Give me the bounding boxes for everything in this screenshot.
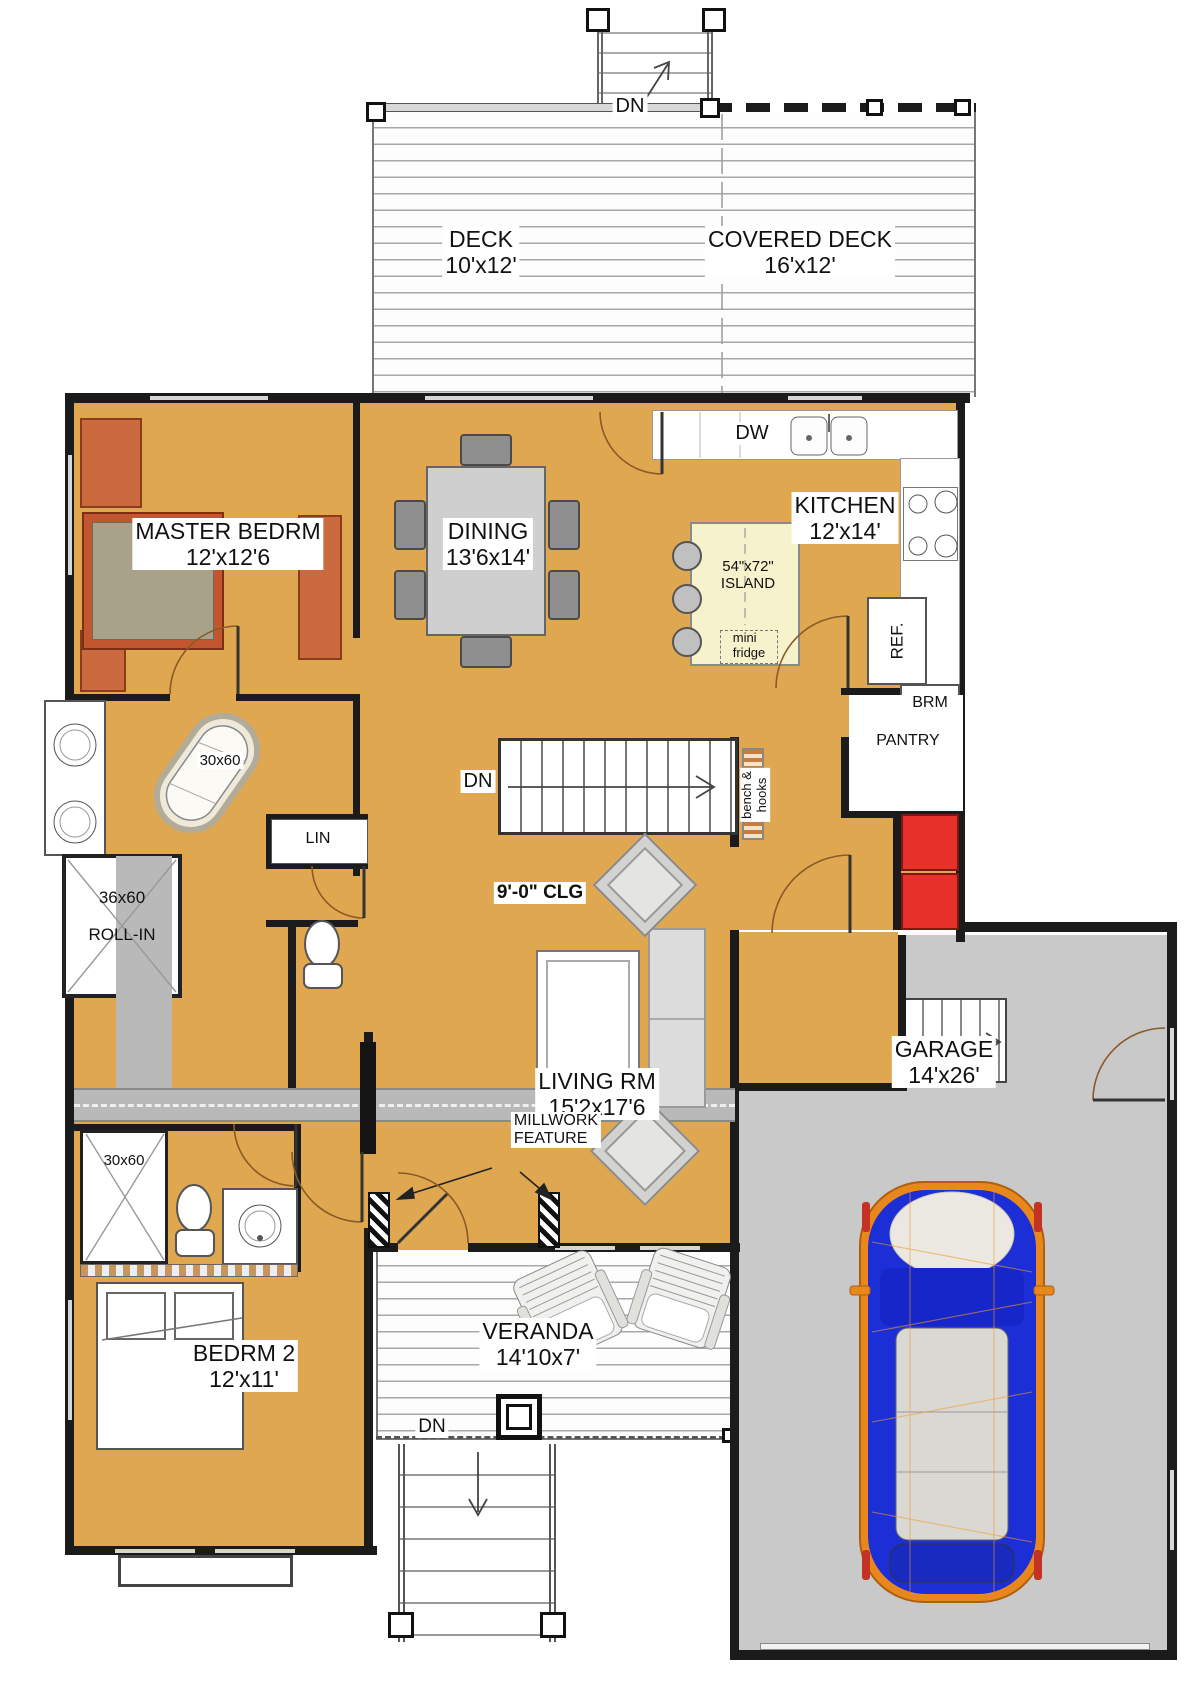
room-dims: 12'x14' (795, 518, 896, 544)
toilet (304, 921, 342, 988)
room-dims: 14'x26' (895, 1062, 993, 1088)
plan-overlay (0, 0, 1200, 1695)
car (850, 1182, 1054, 1602)
master-tub (144, 703, 271, 844)
millwork-arrows (398, 1168, 551, 1199)
label-veranda-stairs-dn: DN (415, 1416, 448, 1438)
bed2-foldline (102, 1318, 242, 1340)
label-ceiling-height: 9'-0" CLG (494, 882, 586, 904)
label-main-stairs-dn: DN (461, 770, 496, 793)
label-mini-fridge: mini fridge (730, 631, 769, 661)
room-name: BEDRM 2 (193, 1340, 295, 1366)
label-veranda: VERANDA 14'10x7' (479, 1318, 596, 1370)
room-name: MASTER BEDRM (135, 518, 320, 544)
label-deck: DECK 10'x12' (442, 226, 519, 278)
toilet (176, 1185, 214, 1256)
label-covered-deck: COVERED DECK 16'x12' (705, 226, 895, 278)
label-dining: DINING 13'6x14' (443, 518, 533, 570)
label-bath2-shower: 30x60 (101, 1152, 148, 1169)
room-dims: 16'x12' (708, 252, 892, 278)
island-stools (673, 542, 701, 656)
room-name: DINING (446, 518, 530, 544)
room-name: LIVING RM (538, 1068, 656, 1094)
room-name: KITCHEN (795, 492, 896, 518)
veranda-chair (625, 1244, 738, 1352)
kitchen-sink (791, 414, 867, 455)
room-name: GARAGE (895, 1036, 993, 1062)
room-name: VERANDA (482, 1318, 593, 1344)
label-dishwasher: DW (732, 422, 771, 445)
island-name: ISLAND (721, 575, 775, 592)
room-dims: 12'x12'6 (135, 544, 320, 570)
room-name: DECK (445, 226, 516, 252)
room-dims: 13'6x14' (446, 544, 530, 570)
label-bench-hooks: bench & hooks (740, 768, 770, 822)
label-deck-stairs-dn: DN (613, 95, 648, 118)
label-pantry: PANTRY (873, 732, 942, 750)
label-rollin-shower: 36x60 ROLL-IN (85, 888, 158, 945)
label-kitchen: KITCHEN 12'x14' (792, 492, 899, 544)
label-bedroom2: BEDRM 2 12'x11' (190, 1340, 298, 1392)
room-dims: 10'x12' (445, 252, 516, 278)
label-linen: LIN (303, 830, 334, 848)
stove-burners (909, 491, 957, 557)
floor-plan: DN DECK 10'x12' COVERED DECK 16'x12' MAS… (0, 0, 1200, 1695)
label-millwork: MILLWORK FEATURE (511, 1112, 601, 1148)
label-broom-closet: BRM (909, 694, 951, 712)
label-master-tub: 30x60 (197, 752, 244, 769)
label-refrigerator: REF. (887, 620, 906, 663)
room-dims: 12'x11' (193, 1366, 295, 1392)
bath2-sink (239, 1205, 281, 1247)
label-island: 54"x72" ISLAND (718, 558, 778, 592)
ensuite-sinks (54, 724, 96, 843)
label-garage: GARAGE 14'x26' (892, 1036, 996, 1088)
label-master-bedroom: MASTER BEDRM 12'x12'6 (132, 518, 323, 570)
island-size: 54"x72" (721, 558, 775, 575)
room-name: COVERED DECK (708, 226, 892, 252)
room-dims: 14'10x7' (482, 1344, 593, 1370)
